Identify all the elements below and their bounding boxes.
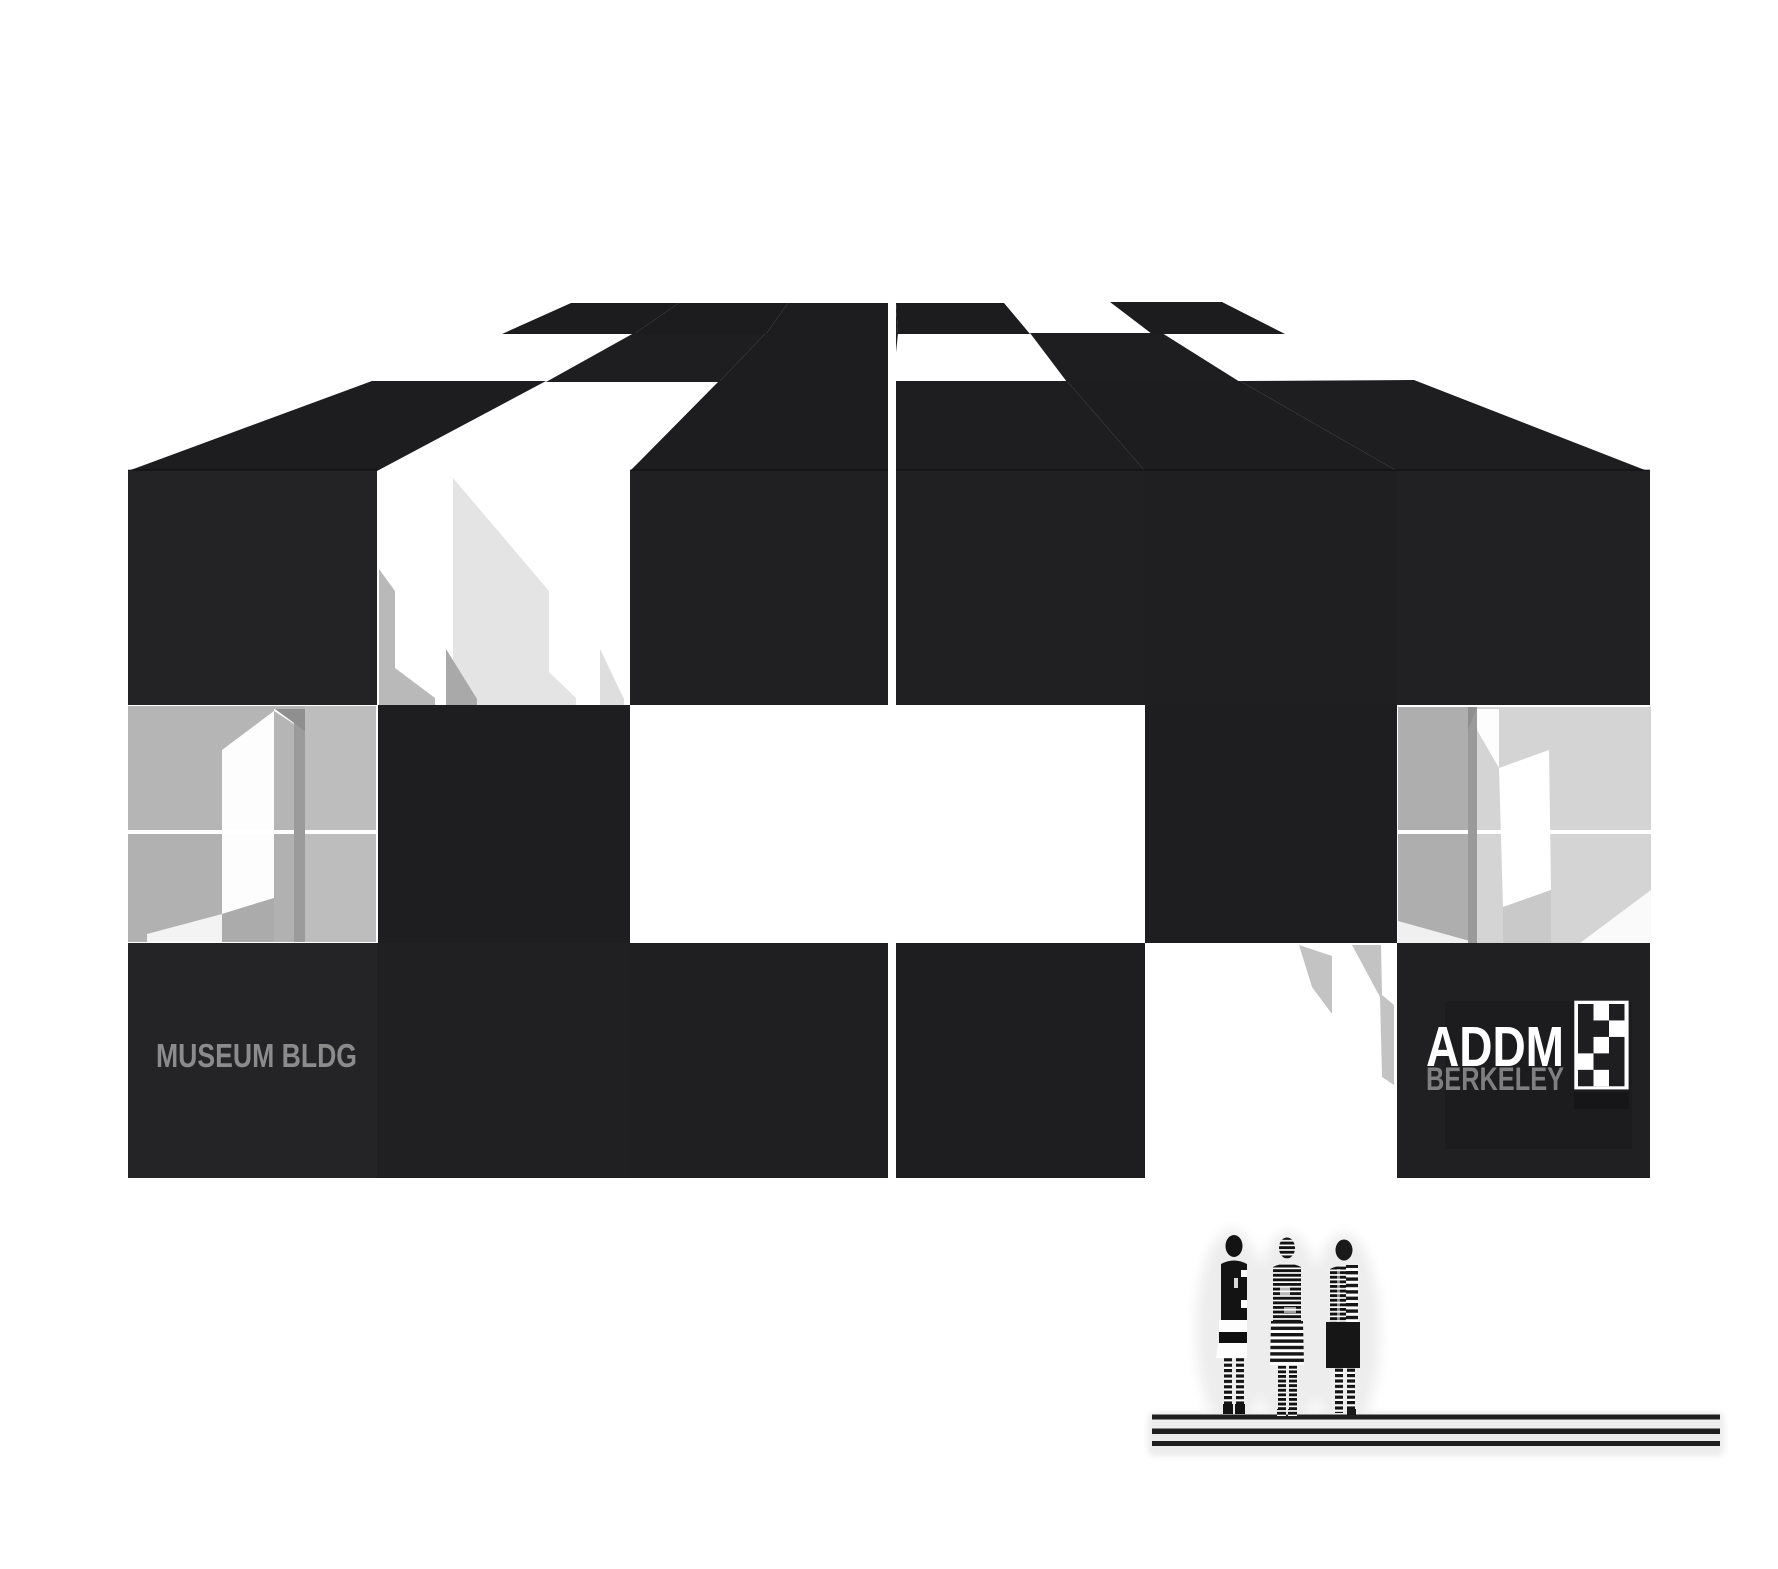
svg-text:MUSEUM BLDG: MUSEUM BLDG [156,1037,357,1074]
svg-text:BERKELEY: BERKELEY [1426,1061,1564,1097]
